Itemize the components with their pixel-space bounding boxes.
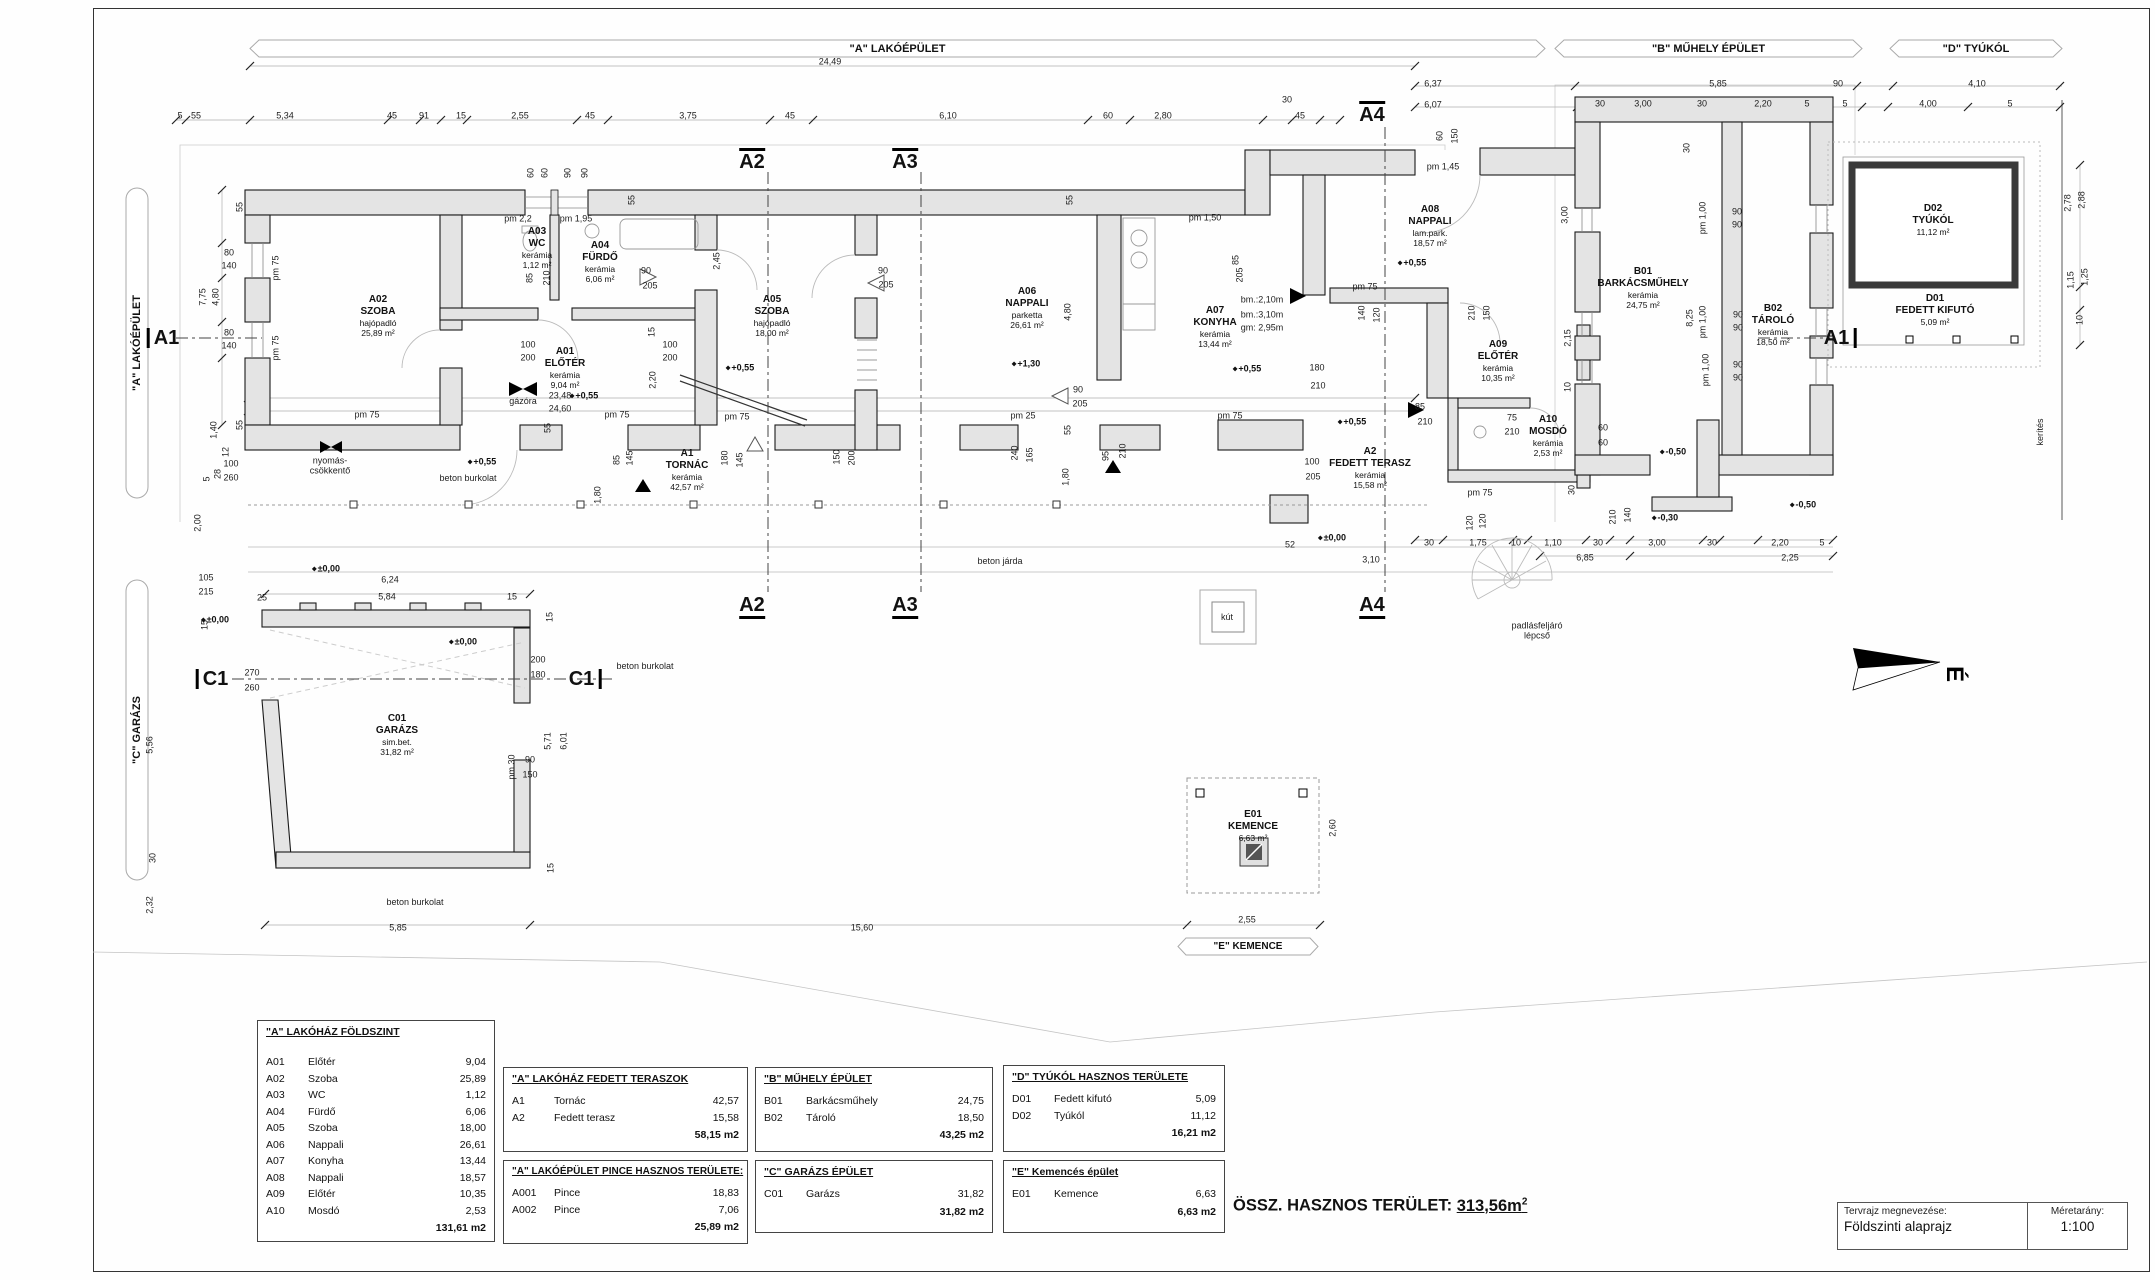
room-area: 9,04 m² (545, 380, 586, 390)
section-marker-a2: A2 (739, 148, 765, 172)
level-diamond-icon: ◆ (1652, 516, 1657, 522)
dim-label: 6,24 (381, 576, 399, 585)
dim-label: 2,78 (2064, 194, 2073, 212)
level-diamond-icon: ◆ (570, 394, 575, 400)
dim-label: gm: 2,95m (1241, 324, 1284, 333)
table-title: "E" Kemencés épület (1012, 1166, 1216, 1178)
dim-label: 10 (1511, 539, 1521, 548)
dim-label: pm 1,50 (1189, 214, 1222, 223)
dim-label: 3,00 (1648, 539, 1666, 548)
dim-label: 210 (1310, 382, 1325, 391)
section-marker-a4: A4 (1359, 101, 1385, 125)
room-code: A09 (1478, 339, 1519, 351)
table-row: A09Előtér10,35 (266, 1186, 486, 1203)
table-row: A02Szoba25,89 (266, 1071, 486, 1088)
dim-label: 2,45 (713, 252, 722, 270)
dim-label: 1,40 (210, 421, 219, 439)
room-name: FEDETT KIFUTÓ (1896, 305, 1975, 317)
room-code: D01 (1896, 293, 1975, 305)
dim-label: 90 (581, 168, 590, 178)
level-mark: ◆+0,55 (468, 458, 496, 467)
dim-label: 1,80 (594, 486, 603, 504)
dim-label: 1,10 (1544, 539, 1562, 548)
dim-label: 4,80 (1064, 303, 1073, 321)
dim-label: 15 (546, 612, 555, 622)
room-label-a02: A02SZOBAhajópadló25,89 m² (360, 294, 397, 338)
dim-label: 75 (1507, 414, 1517, 423)
building-banner: "D" TYÚKÓL (1890, 40, 2062, 57)
dim-label: 90 (1732, 221, 1742, 230)
dim-label: 15 (456, 112, 466, 121)
level-mark: ◆+0,55 (1233, 365, 1261, 374)
room-floor-finish: parketta (1005, 310, 1048, 320)
room-name: MOSDÓ (1529, 426, 1567, 438)
dim-label: 3,00 (1561, 206, 1570, 224)
dim-label: 90 (525, 756, 535, 765)
dim-label: 60 (541, 168, 550, 178)
total-area-summary: ÖSSZ. HASZNOS TERÜLET: 313,56m2 (1233, 1196, 1527, 1216)
dim-label: pm 75 (1352, 283, 1377, 292)
room-area: 24,75 m² (1597, 300, 1688, 310)
dim-label: 205 (642, 282, 657, 291)
level-mark: ◆±0,00 (312, 565, 340, 574)
dim-label: 260 (244, 684, 259, 693)
dim-label: 1,75 (1469, 539, 1487, 548)
room-name: WC (522, 238, 552, 250)
dim-label: 5,71 (544, 732, 553, 750)
room-floor-finish: kerámia (1193, 329, 1236, 339)
room-floor-finish: lam.park. (1408, 228, 1451, 238)
banner-shapes (126, 40, 2062, 955)
dim-label: 210 (1504, 428, 1519, 437)
dim-label: 180 (530, 671, 545, 680)
dim-label: 4,00 (1919, 100, 1937, 109)
dim-label: pm 1,00 (1702, 354, 1711, 387)
total-area-value: 313,56m2 (1457, 1197, 1528, 1215)
room-label-a10: A10MOSDÓkerámia2,53 m² (1529, 414, 1567, 458)
room-code: A10 (1529, 414, 1567, 426)
annotation-text: beton burkolat (386, 897, 443, 907)
annotation-text: nyomás- csökkentő (310, 456, 351, 477)
dim-label: bm.:2,10m (1241, 296, 1284, 305)
dim-label: 240 (1011, 445, 1020, 460)
dim-label: 145 (736, 452, 745, 467)
dim-label: 200 (520, 354, 535, 363)
table-row: A01Előtér9,04 (266, 1054, 486, 1071)
dim-label: 205 (878, 281, 893, 290)
room-label-c01: C01GARÁZSsim.bet.31,82 m² (376, 713, 418, 757)
level-diamond-icon: ◆ (1338, 420, 1343, 426)
total-area-label: ÖSSZ. HASZNOS TERÜLET: (1233, 1197, 1452, 1215)
title-block: Tervrajz megnevezése: Földszinti alapraj… (1837, 1202, 2128, 1250)
table-row: A04Fürdő6,06 (266, 1104, 486, 1121)
room-name: ELŐTÉR (1478, 351, 1519, 363)
dim-label: 30 (1595, 100, 1605, 109)
table-row: A1Tornác42,57 (512, 1093, 739, 1110)
area-table-1: "A" LAKÓHÁZ FEDETT TERASZOKA1Tornác42,57… (503, 1067, 748, 1152)
dim-label: 6,85 (1576, 554, 1594, 563)
dim-label: 91 (419, 112, 429, 121)
dim-label: 60 (1598, 439, 1608, 448)
room-area: 25,89 m² (360, 328, 397, 338)
dim-label: 100 (223, 460, 238, 469)
dim-label: 5 (203, 476, 212, 481)
room-area: 1,12 m² (522, 260, 552, 270)
dim-label: 4,80 (212, 288, 221, 306)
dim-label: 5 (2007, 100, 2012, 109)
room-code: B02 (1752, 303, 1794, 315)
table-total: 58,15 m2 (512, 1126, 739, 1144)
room-area: 26,61 m² (1005, 320, 1048, 330)
level-mark: ◆+1,30 (1012, 360, 1040, 369)
dim-label: 85 (1415, 403, 1425, 412)
room-code: A1 (666, 448, 709, 460)
room-label-a1: A1TORNÁCkerámia42,57 m² (666, 448, 709, 492)
dim-label: bm.:3,10m (1241, 311, 1284, 320)
dim-label: 3,10 (1362, 556, 1380, 565)
room-name: KONYHA (1193, 317, 1236, 329)
dim-label: 90 (1833, 80, 1843, 89)
annotation-text: kút (1221, 612, 1233, 622)
dim-label: 90 (1073, 386, 1083, 395)
dim-label: 2,55 (1238, 916, 1256, 925)
room-name: TÁROLÓ (1752, 315, 1794, 327)
dim-label: 55 (628, 195, 637, 205)
room-code: A06 (1005, 286, 1048, 298)
table-title: "A" LAKÓHÁZ FÖLDSZINT (266, 1026, 486, 1038)
dim-label: 30 (1697, 100, 1707, 109)
dim-label: pm 30 (508, 754, 517, 779)
room-code: A08 (1408, 204, 1451, 216)
room-label-e01: E01KEMENCE6,63 m² (1228, 809, 1278, 843)
dim-label: 140 (221, 342, 236, 351)
room-label-a08: A08NAPPALIlam.park.18,57 m² (1408, 204, 1451, 248)
room-area: 18,57 m² (1408, 238, 1451, 248)
table-total: 131,61 m2 (266, 1219, 486, 1237)
dim-label: 30 (1424, 539, 1434, 548)
dim-label: pm 75 (354, 411, 379, 420)
table-row: D02Tyúkól11,12 (1012, 1108, 1216, 1125)
level-diamond-icon: ◆ (1660, 450, 1665, 456)
dim-label: 7,75 (199, 288, 208, 306)
dim-label: pm 1,00 (1699, 306, 1708, 339)
dim-label: 200 (530, 656, 545, 665)
table-row: A001Pince18,83 (512, 1185, 739, 1202)
room-label-a07: A07KONYHAkerámia13,44 m² (1193, 305, 1236, 349)
dim-label: 2,88 (2078, 191, 2087, 209)
table-row: A03WC1,12 (266, 1087, 486, 1104)
dim-label: 15 (507, 593, 517, 602)
room-code: E01 (1228, 809, 1278, 821)
dim-label: 90 (1732, 208, 1742, 217)
room-label-a2: A2FEDETT TERASZkerámia15,58 m² (1329, 446, 1411, 490)
room-area: 5,09 m² (1896, 317, 1975, 327)
annotation-text: beton burkolat (439, 473, 496, 483)
dim-label: 120 (1373, 307, 1382, 322)
dim-label: 140 (221, 262, 236, 271)
level-diamond-icon: ◆ (726, 366, 731, 372)
dim-label: 15 (648, 327, 657, 337)
dim-label: 90 (641, 267, 651, 276)
room-name: GARÁZS (376, 725, 418, 737)
dim-label: 25 (257, 594, 267, 603)
dim-label: 200 (662, 354, 677, 363)
annotation-text: gázóra (509, 396, 537, 406)
scale-label: Méretarány: (2034, 1206, 2121, 1217)
dim-label: 55 (191, 112, 201, 121)
area-table-2: "A" LAKÓÉPÜLET PINCE HASZNOS TERÜLETE:A0… (503, 1160, 748, 1244)
dim-label: 2,00 (194, 514, 203, 532)
dim-label: pm 75 (604, 411, 629, 420)
level-mark: ◆-0,50 (1660, 448, 1686, 457)
dim-label: 4,10 (1968, 80, 1986, 89)
dim-label: 150 (1483, 305, 1492, 320)
annotation-text: kerítés (2035, 418, 2045, 445)
dim-label: 23,48 (549, 392, 572, 401)
table-row: A10Mosdó2,53 (266, 1203, 486, 1220)
dim-label: 52 (1285, 541, 1295, 550)
dim-label: pm 1,00 (1699, 202, 1708, 235)
room-label-b02: B02TÁROLÓkerámia18,50 m² (1752, 303, 1794, 347)
section-marker-a3: A3 (892, 148, 918, 172)
dim-label: 60 (1436, 131, 1445, 141)
dim-label: 210 (1417, 418, 1432, 427)
dim-label: 150 (522, 771, 537, 780)
table-row: E01Kemence6,63 (1012, 1186, 1216, 1203)
dim-label: 60 (527, 168, 536, 178)
dim-label: 60 (1103, 112, 1113, 121)
building-banner: "A" LAKÓÉPÜLET (250, 40, 1545, 57)
table-title: "B" MŰHELY ÉPÜLET (764, 1073, 984, 1085)
room-code: A04 (582, 240, 618, 252)
level-diamond-icon: ◆ (201, 618, 206, 624)
table-row: B01Barkácsműhely24,75 (764, 1093, 984, 1110)
table-title: "A" LAKÓÉPÜLET PINCE HASZNOS TERÜLETE: (512, 1166, 739, 1177)
level-mark: ◆-0,50 (1790, 501, 1816, 510)
dim-label: 55 (1064, 425, 1073, 435)
dim-label: 2,20 (1771, 539, 1789, 548)
side-banner: "C" GARÁZS (126, 580, 148, 880)
dim-label: 5 (1804, 100, 1809, 109)
dim-label: 120 (1466, 515, 1475, 530)
dim-label: 1,80 (1062, 468, 1071, 486)
room-floor-finish: kerámia (1529, 438, 1567, 448)
dim-label: 180 (1309, 364, 1324, 373)
side-banner: "A" LAKÓÉPÜLET (126, 188, 148, 498)
dim-label: 6,01 (560, 732, 569, 750)
dim-label: 15,60 (851, 924, 874, 933)
level-diamond-icon: ◆ (449, 640, 454, 646)
room-label-a04: A04FÜRDŐkerámia6,06 m² (582, 240, 618, 284)
dim-label: 100 (662, 341, 677, 350)
room-floor-finish: kerámia (1329, 470, 1411, 480)
annotation-text: beton járda (977, 556, 1022, 566)
dim-label: 85 (613, 455, 622, 465)
dim-label: 205 (1236, 267, 1245, 282)
room-name: SZOBA (360, 306, 397, 318)
annotation-text: padlásfeljáró lépcső (1511, 621, 1562, 642)
dim-label: 5 (1842, 100, 1847, 109)
table-total: 16,21 m2 (1012, 1124, 1216, 1142)
room-code: A01 (545, 346, 586, 358)
dim-label: 260 (223, 474, 238, 483)
room-label-a06: A06NAPPALIparketta26,61 m² (1005, 286, 1048, 330)
level-diamond-icon: ◆ (312, 567, 317, 573)
dim-label: 165 (1026, 447, 1035, 462)
table-row: D01Fedett kifutó5,09 (1012, 1091, 1216, 1108)
section-marker-a1: A1 (1824, 328, 1857, 348)
dim-label: 90 (878, 267, 888, 276)
dim-label: 90 (1733, 361, 1743, 370)
level-diamond-icon: ◆ (1790, 503, 1795, 509)
dim-label: 2,80 (1154, 112, 1172, 121)
table-row: A07Konyha13,44 (266, 1153, 486, 1170)
room-floor-finish: hajópadló (360, 318, 397, 328)
room-name: ELŐTÉR (545, 358, 586, 370)
area-table-3: "B" MŰHELY ÉPÜLETB01Barkácsműhely24,75B0… (755, 1067, 993, 1152)
area-table-4: "C" GARÁZS ÉPÜLETC01Garázs31,8231,82 m2 (755, 1160, 993, 1233)
dim-label: pm 25 (1010, 412, 1035, 421)
dim-label: 80 (224, 329, 234, 338)
section-marker-c1: C1 (196, 669, 229, 689)
area-table-0: "A" LAKÓHÁZ FÖLDSZINTA01Előtér9,04A02Szo… (257, 1020, 495, 1242)
dim-label: 120 (1479, 513, 1488, 528)
scale-cell: Méretarány: 1:100 (2028, 1203, 2127, 1249)
level-mark: ◆+0,55 (1338, 418, 1366, 427)
table-row: C01Garázs31,82 (764, 1186, 984, 1203)
building-banner: "B" MŰHELY ÉPÜLET (1555, 40, 1862, 57)
dim-label: 140 (1624, 507, 1633, 522)
dim-label: 12 (222, 447, 231, 457)
drawing-name: Földszinti alaprajz (1844, 1219, 2021, 1234)
dim-label: pm 75 (272, 335, 281, 360)
room-floor-finish: hajópadló (754, 318, 791, 328)
dim-label: 5,85 (389, 924, 407, 933)
dim-label: 15 (547, 863, 556, 873)
table-total: 43,25 m2 (764, 1126, 984, 1144)
dim-label: 30 (1568, 485, 1577, 495)
room-label-a09: A09ELŐTÉRkerámia10,35 m² (1478, 339, 1519, 383)
table-row: A2Fedett terasz15,58 (512, 1110, 739, 1127)
dim-label: 45 (1295, 112, 1305, 121)
dim-label: 215 (198, 588, 213, 597)
room-area: 13,44 m² (1193, 339, 1236, 349)
dim-label: 140 (1358, 305, 1367, 320)
level-diamond-icon: ◆ (468, 460, 473, 466)
area-table-6: "E" Kemencés épületE01Kemence6,636,63 m2 (1003, 1160, 1225, 1233)
dim-label: pm 75 (1217, 412, 1242, 421)
dim-label: 28 (214, 469, 223, 479)
room-area: 6,63 m² (1228, 833, 1278, 843)
room-label-a03: A03WCkerámia1,12 m² (522, 226, 552, 270)
level-diamond-icon: ◆ (1233, 367, 1238, 373)
dim-label: 90 (564, 168, 573, 178)
section-marker-a2: A2 (739, 595, 765, 619)
room-floor-finish: kerámia (582, 264, 618, 274)
room-name: KEMENCE (1228, 821, 1278, 833)
table-title: "C" GARÁZS ÉPÜLET (764, 1166, 984, 1178)
room-label-b01: B01BARKÁCSMŰHELYkerámia24,75 m² (1597, 266, 1688, 310)
table-title: "D" TYÚKÓL HASZNOS TERÜLETE (1012, 1071, 1216, 1083)
dim-label: 55 (1066, 195, 1075, 205)
dim-label: 2,20 (1754, 100, 1772, 109)
section-marker-a4: A4 (1359, 595, 1385, 619)
dim-label: 45 (387, 112, 397, 121)
dim-label: 210 (1609, 509, 1618, 524)
dim-label: 24,60 (549, 405, 572, 414)
room-area: 18,00 m² (754, 328, 791, 338)
room-area: 42,57 m² (666, 482, 709, 492)
level-mark: ◆+0,55 (570, 392, 598, 401)
dim-label: 150 (833, 449, 842, 464)
dashed-lines (248, 501, 1833, 893)
dim-label: 210 (543, 270, 552, 285)
dim-label: 205 (1072, 400, 1087, 409)
level-diamond-icon: ◆ (1318, 536, 1323, 542)
dim-label: 10 (2076, 315, 2085, 325)
room-name: FÜRDŐ (582, 252, 618, 264)
level-mark: ◆±0,00 (1318, 534, 1346, 543)
dim-label: 2,32 (146, 896, 155, 914)
level-diamond-icon: ◆ (1012, 362, 1017, 368)
scale-value: 1:100 (2034, 1219, 2121, 1234)
room-floor-finish: kerámia (1752, 327, 1794, 337)
room-label-a01: A01ELŐTÉRkerámia9,04 m² (545, 346, 586, 390)
dim-label: 1,15 (2067, 271, 2076, 289)
dim-label: 2,25 (1781, 554, 1799, 563)
dim-label: 5,84 (378, 593, 396, 602)
dim-label: 180 (721, 450, 730, 465)
dim-label: pm 75 (272, 255, 281, 280)
section-marker-a1: A1 (147, 328, 180, 348)
dim-label: 2,60 (1329, 819, 1338, 837)
room-label-a05: A05SZOBAhajópadló18,00 m² (754, 294, 791, 338)
room-code: A05 (754, 294, 791, 306)
table-title: "A" LAKÓHÁZ FEDETT TERASZOK (512, 1073, 739, 1085)
dim-label: 45 (585, 112, 595, 121)
dim-label: 105 (198, 574, 213, 583)
dim-label: 205 (1305, 473, 1320, 482)
dim-label: 100 (520, 341, 535, 350)
room-area: 2,53 m² (1529, 448, 1567, 458)
dim-label: 210 (1119, 443, 1128, 458)
floorplan-sheet: É 24,496,376,075,85904,10303,00302,20554… (0, 0, 2155, 1280)
dim-label: 270 (244, 669, 259, 678)
room-floor-finish: kerámia (666, 472, 709, 482)
dim-label: 2,55 (511, 112, 529, 121)
dim-label: 3,00 (1634, 100, 1652, 109)
fixtures (522, 218, 1552, 599)
level-mark: ◆+0,55 (726, 364, 754, 373)
room-floor-finish: kerámia (1478, 363, 1519, 373)
dim-label: 8,25 (1686, 309, 1695, 327)
level-mark: ◆-0,30 (1652, 514, 1678, 523)
dim-label: 145 (626, 450, 635, 465)
room-area: 31,82 m² (376, 747, 418, 757)
room-area: 11,12 m² (1912, 227, 1953, 237)
section-marker-c1: C1 (569, 669, 602, 689)
room-code: C01 (376, 713, 418, 725)
dim-label: 90 (1733, 374, 1743, 383)
room-name: FEDETT TERASZ (1329, 458, 1411, 470)
room-area: 18,50 m² (1752, 337, 1794, 347)
dim-label: 30 (1593, 539, 1603, 548)
dim-label: 30 (1683, 143, 1692, 153)
building-banner-kemence: "E" KEMENCE (1178, 938, 1318, 955)
dim-label: 2,15 (1564, 329, 1573, 347)
dim-label: 30 (149, 853, 158, 863)
dim-label: 24,49 (819, 58, 842, 67)
